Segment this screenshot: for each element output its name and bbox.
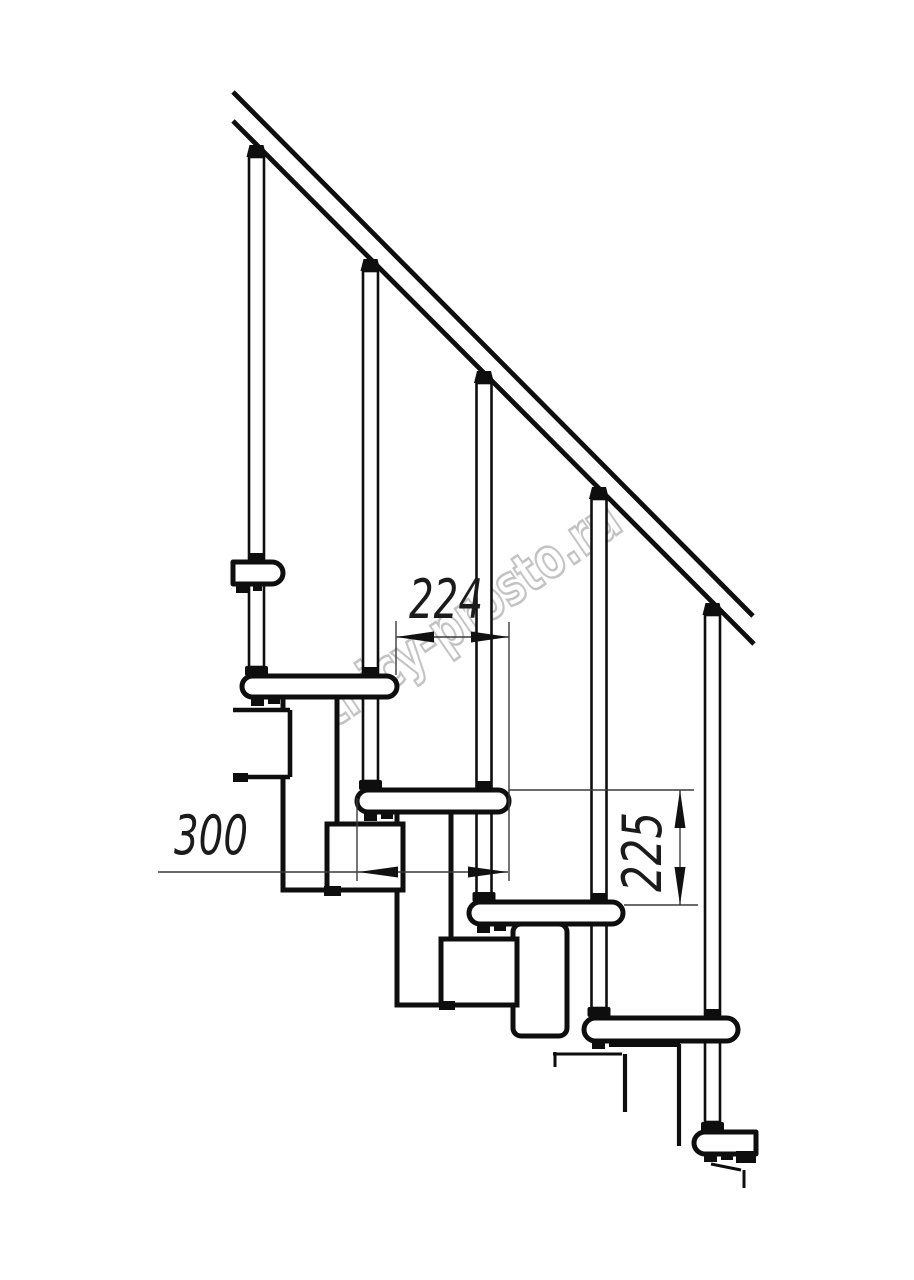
- baluster-post: [592, 499, 607, 1008]
- baluster-tread-collar: [591, 893, 608, 902]
- baluster-tread-collar: [476, 781, 493, 790]
- baluster-tread-flange: [588, 1007, 611, 1017]
- baluster-post: [363, 271, 378, 781]
- baluster-tread-flange: [245, 666, 268, 676]
- baluster-tread-collar: [362, 667, 379, 676]
- dimension-arrow: [675, 790, 686, 828]
- technical-drawing-page: lestnicy-prosto.ru224300225: [0, 0, 914, 1280]
- dimension-label-225: 225: [611, 812, 674, 892]
- stair-tread: [242, 676, 397, 697]
- module-foot: [233, 773, 248, 782]
- tread-bracket: [494, 924, 506, 931]
- module-fragment-bar: [617, 1041, 680, 1047]
- module-foot: [439, 1001, 455, 1010]
- tread-bracket: [253, 584, 262, 591]
- stair-tread: [357, 790, 509, 812]
- support-module: [441, 939, 517, 1005]
- module-fragment-line: [711, 1164, 741, 1170]
- stair-tread: [694, 1132, 756, 1154]
- baluster-tread-collar: [248, 553, 265, 562]
- tread-bracket: [268, 697, 280, 704]
- tread-bracket: [736, 1151, 756, 1163]
- baluster-tread-flange: [701, 1122, 724, 1132]
- tread-bracket: [381, 812, 393, 819]
- stair-tread: [233, 562, 283, 584]
- module-foot: [324, 886, 341, 896]
- tread-bracket: [236, 584, 249, 593]
- stair-tread: [584, 1018, 738, 1041]
- baluster-tread-flange: [359, 780, 382, 790]
- baluster-tread-flange: [473, 892, 496, 902]
- tread-bracket: [364, 812, 377, 821]
- stair-tread: [469, 902, 623, 924]
- tread-bracket: [477, 924, 490, 933]
- baluster-tread-collar: [704, 1009, 721, 1018]
- dimension-label-300: 300: [174, 804, 248, 867]
- modular-staircase-side-view-drawing: lestnicy-prosto.ru224300225: [0, 0, 914, 1280]
- support-module-partial-fill: [234, 712, 289, 775]
- tread-bracket: [704, 1153, 717, 1162]
- baluster-post: [705, 615, 720, 1122]
- tread-bracket: [721, 1153, 733, 1160]
- support-module: [513, 924, 567, 1036]
- support-module: [327, 824, 403, 890]
- dimension-label-224: 224: [409, 568, 483, 631]
- dimension-arrow: [675, 867, 686, 905]
- handrail-line: [233, 92, 753, 616]
- tread-bracket: [592, 1040, 605, 1049]
- tread-bracket: [251, 697, 264, 706]
